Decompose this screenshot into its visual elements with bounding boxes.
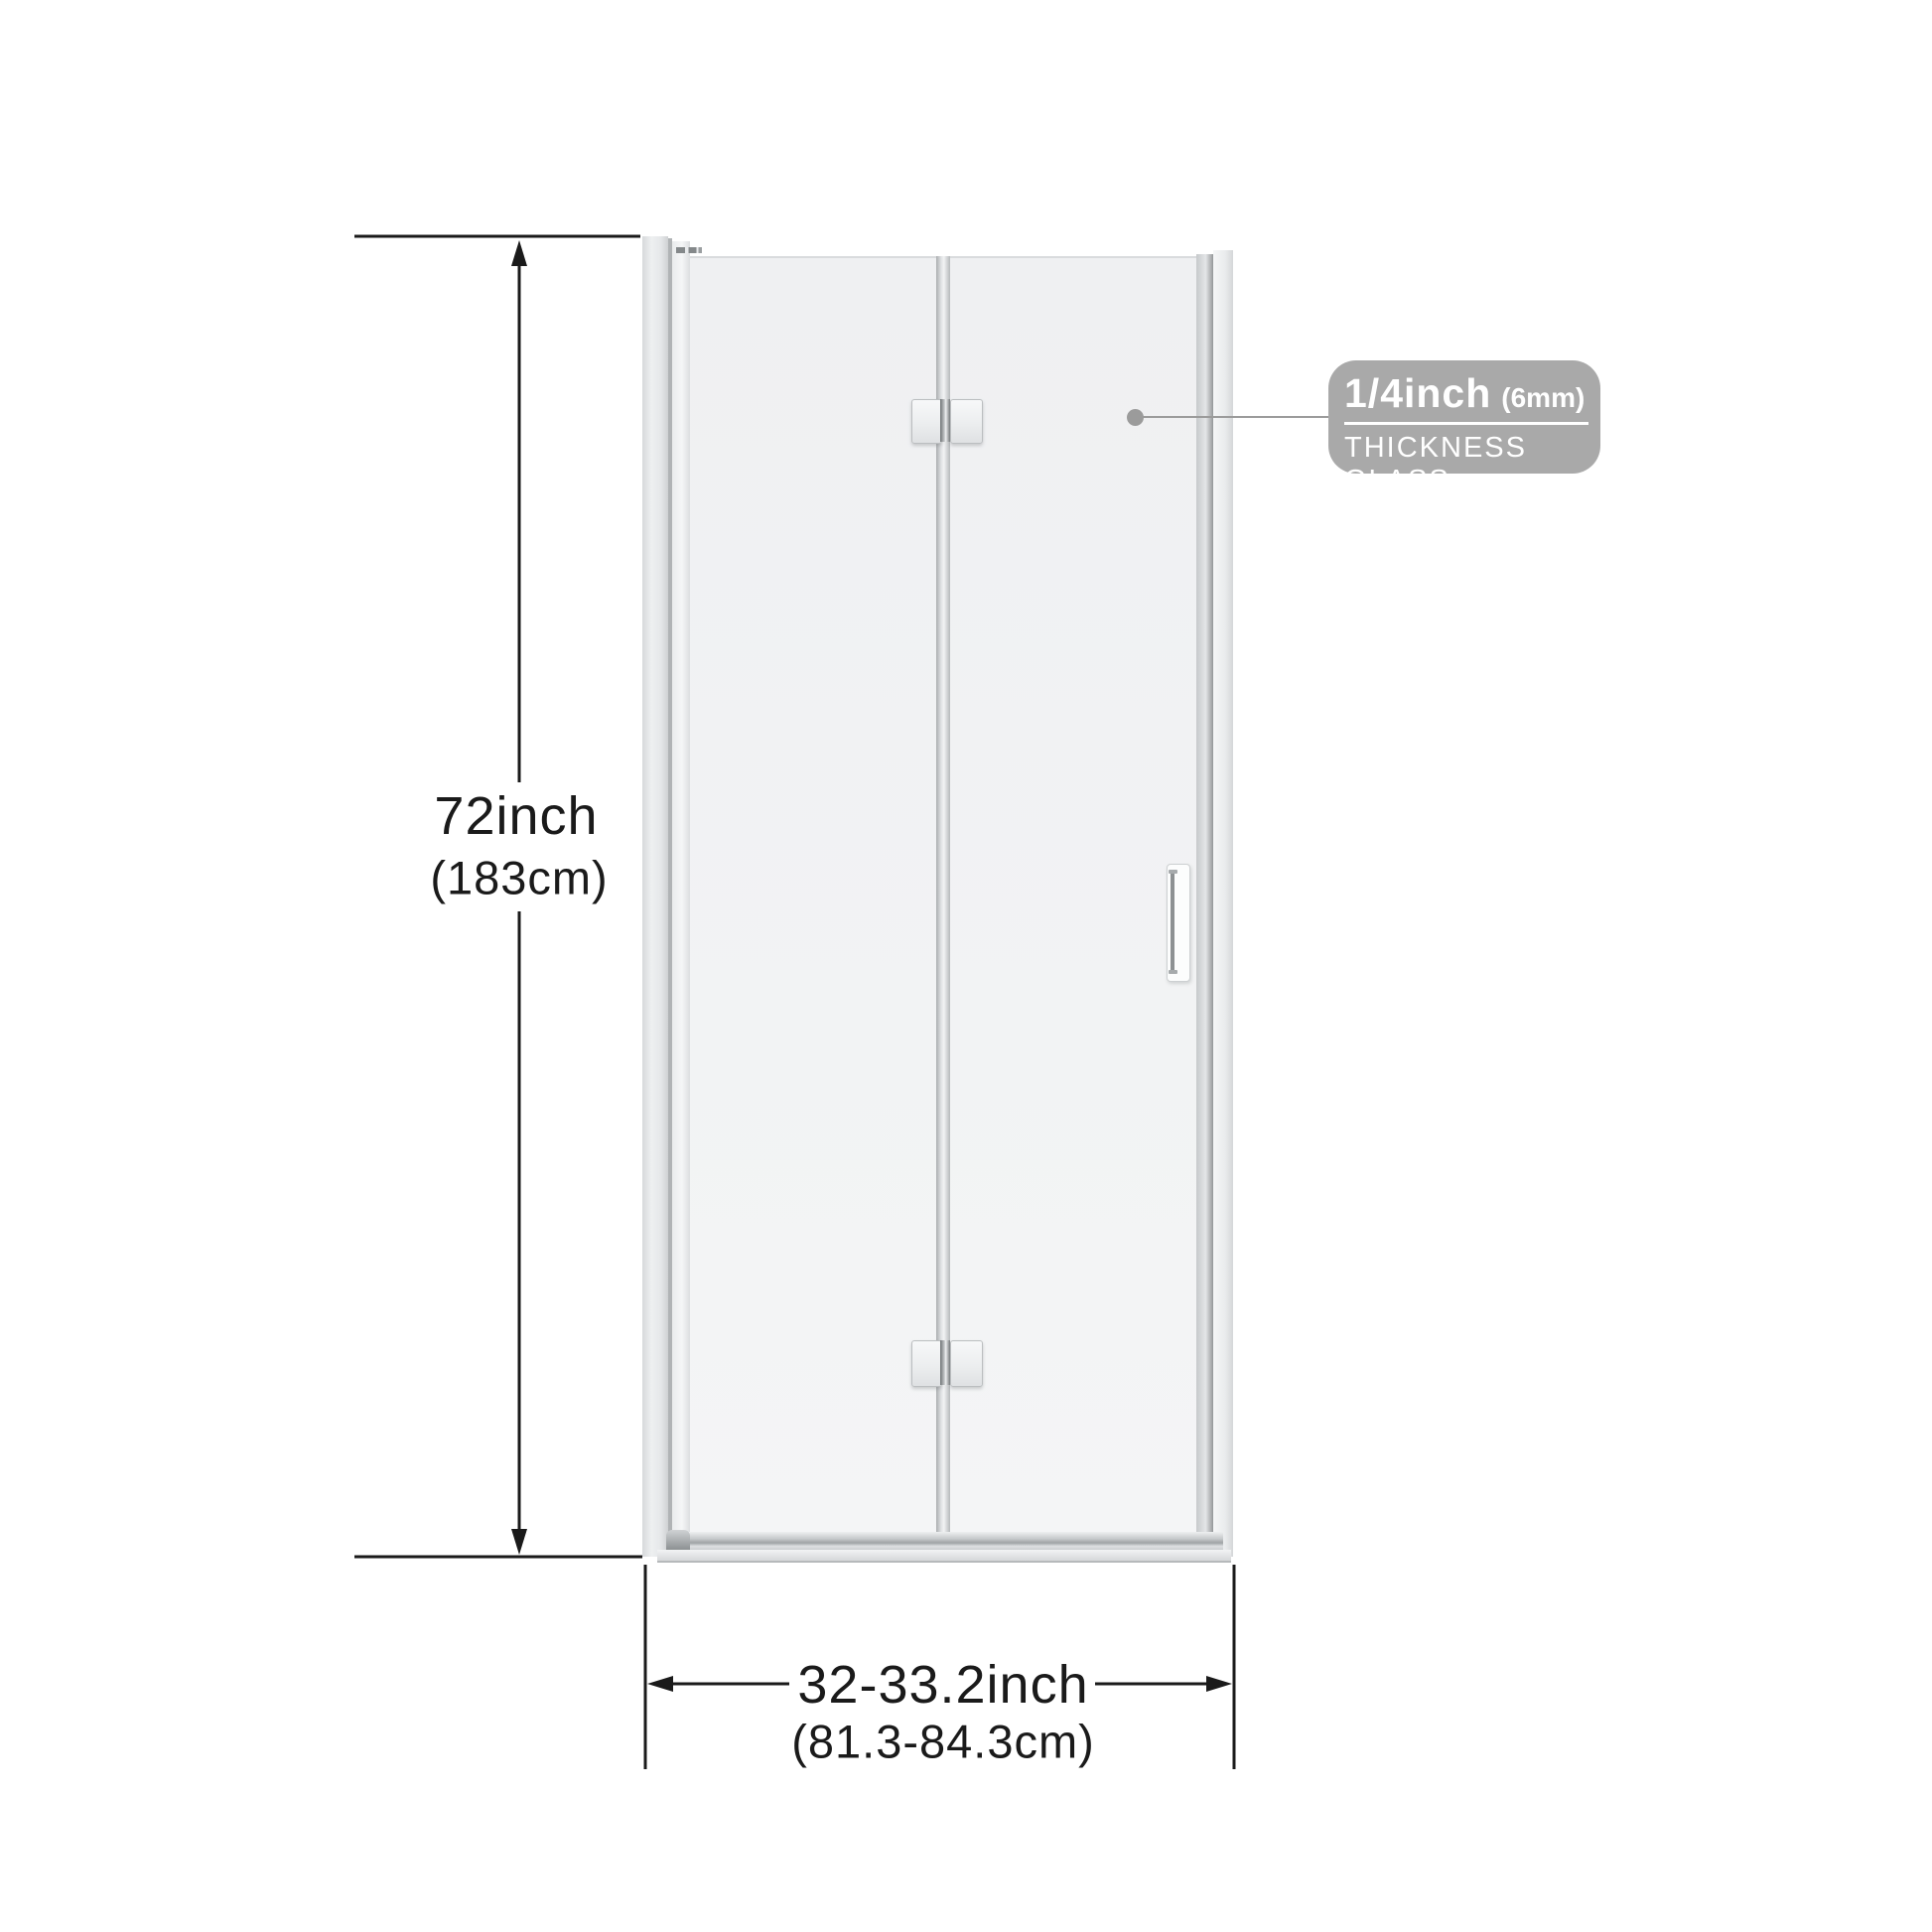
width-arrow-right [1206, 1676, 1232, 1692]
width-dimension-metric: (81.3-84.3cm) [791, 1715, 1095, 1769]
height-dimension-metric: (183cm) [430, 851, 608, 905]
top-mounting-bracket [676, 247, 702, 253]
diagram-canvas: 72inch (183cm) 32-33.2inch (81.3-84.3cm)… [0, 0, 1932, 1932]
thickness-callout-badge: 1/4inch (6mm) THICKNESS GLASS [1328, 360, 1600, 474]
left-frame-strip [672, 241, 690, 1557]
bottom-hinge-pivot [940, 1340, 950, 1385]
thickness-value: 1/4inch [1344, 370, 1491, 417]
door-handle-bar [1171, 872, 1174, 972]
glass-panel-right [950, 256, 1196, 1549]
top-hinge-right-plate [950, 399, 983, 444]
right-wall-profile [1213, 250, 1233, 1557]
bottom-threshold [657, 1550, 1231, 1563]
height-arrow-down [511, 1529, 527, 1555]
callout-leader-line [1142, 416, 1328, 418]
thickness-callout-line1: 1/4inch (6mm) [1344, 370, 1587, 417]
glass-panel-left [690, 256, 936, 1549]
bottom-hinge-left-plate [911, 1340, 942, 1387]
thickness-metric: (6mm) [1501, 382, 1585, 414]
top-hinge-left-plate [911, 399, 942, 444]
badge-divider-rule [1344, 422, 1588, 425]
handle-bottom-mount [1169, 970, 1177, 974]
height-arrow-up [511, 240, 527, 266]
height-dimension-value: 72inch [434, 785, 598, 847]
handle-top-mount [1169, 870, 1177, 874]
width-arrow-left [647, 1676, 673, 1692]
right-door-stile [1196, 254, 1213, 1547]
left-wall-profile [642, 236, 668, 1557]
bottom-hinge-right-plate [950, 1340, 983, 1387]
thickness-caption: THICKNESS GLASS [1344, 432, 1587, 497]
width-dimension-value: 32-33.2inch [797, 1654, 1088, 1716]
top-hinge-pivot [940, 399, 950, 442]
